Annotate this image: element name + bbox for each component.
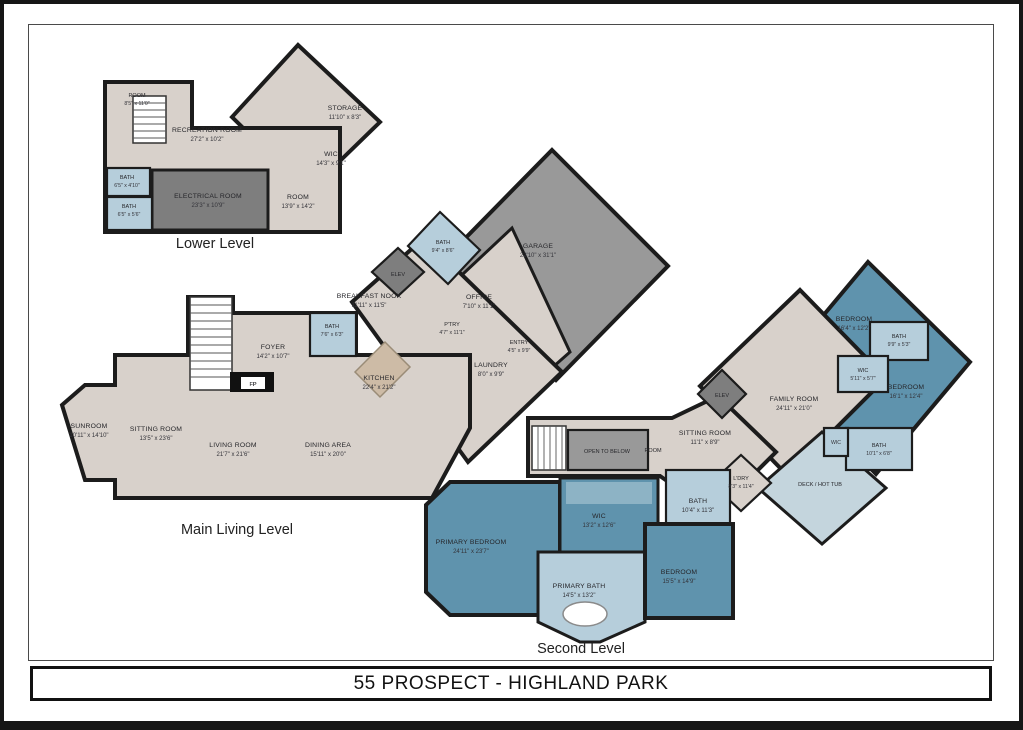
page-frame [0, 0, 1023, 730]
floor-plan-page: ROOM 8'5" x 11'0" RECREATION ROOM 27'2" … [0, 0, 1023, 730]
